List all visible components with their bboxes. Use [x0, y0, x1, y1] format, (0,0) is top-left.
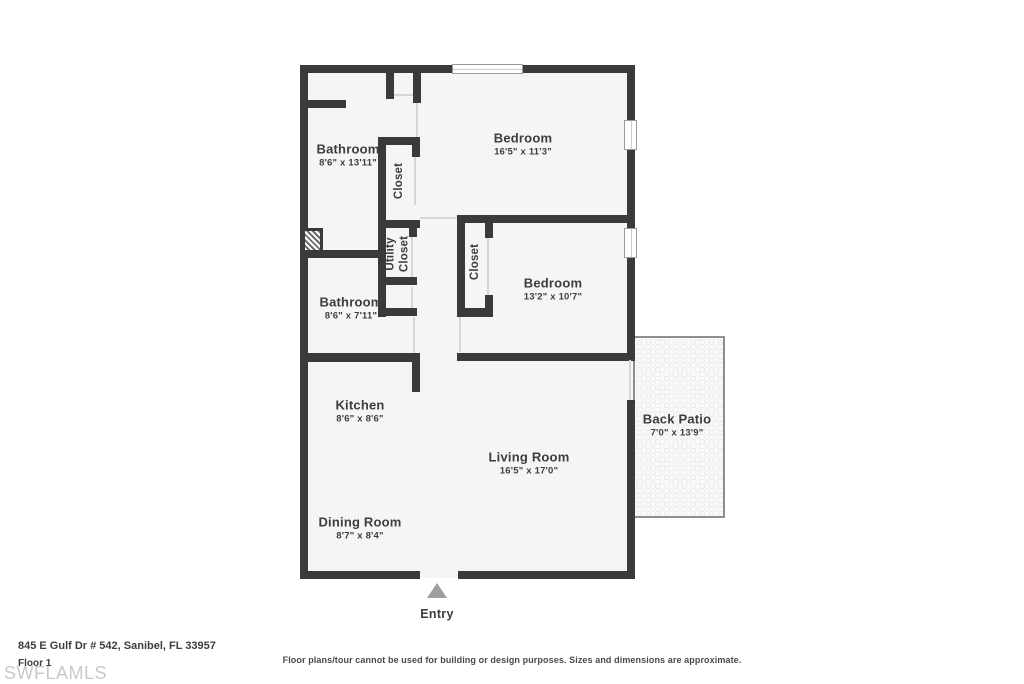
room-name: Dining Room: [318, 515, 401, 531]
door-opening: [411, 287, 413, 308]
room-dimensions: 7'0" x 13'9": [643, 428, 711, 440]
room-label-closet-2: Closet: [468, 244, 482, 280]
door-opening: [414, 157, 416, 205]
room-name: Back Patio: [643, 412, 711, 428]
room-name: Kitchen: [335, 398, 384, 414]
window: [452, 64, 523, 74]
door-opening: [459, 317, 461, 352]
wall-segment: [627, 65, 635, 120]
room-label-closet-1: Closet: [392, 163, 406, 199]
wall-segment: [457, 353, 635, 361]
disclaimer-text: Floor plans/tour cannot be used for buil…: [0, 655, 1024, 665]
room-name: Closet: [468, 244, 482, 280]
door-opening: [487, 238, 489, 295]
room-label-bathroom-2: Bathroom 8'6" x 7'11": [320, 295, 383, 324]
wall-segment: [409, 222, 417, 237]
entry-arrow-icon: [427, 583, 447, 598]
room-label-bedroom-2: Bedroom 13'2" x 10'7": [524, 276, 582, 305]
room-name: Bathroom: [317, 142, 380, 158]
room-dimensions: 16'5" x 11'3": [494, 147, 552, 159]
room-name: Closet: [392, 163, 406, 199]
wall-segment: [458, 571, 635, 579]
wall-segment: [300, 571, 420, 579]
door-opening: [394, 94, 413, 96]
wall-segment: [412, 353, 420, 392]
chimney-hatch: [302, 228, 323, 253]
room-name: Closet: [398, 236, 412, 272]
wall-segment: [457, 215, 635, 223]
room-dimensions: 8'6" x 7'11": [320, 311, 383, 323]
window-pane: [631, 121, 632, 149]
room-label-kitchen: Kitchen 8'6" x 8'6": [335, 398, 384, 427]
wall-segment: [523, 65, 635, 73]
window: [624, 120, 637, 150]
door-opening: [420, 217, 457, 219]
room-label-utility-closet: Utility Closet: [384, 236, 413, 272]
room-name: Utility: [384, 236, 398, 272]
wall-segment: [300, 100, 346, 108]
door-opening: [413, 317, 415, 353]
room-label-dining-room: Dining Room 8'7" x 8'4": [318, 515, 401, 544]
door-opening: [629, 360, 631, 400]
wall-segment: [457, 308, 493, 317]
room-label-back-patio: Back Patio 7'0" x 13'9": [643, 412, 711, 441]
room-dimensions: 8'6" x 8'6": [335, 414, 384, 426]
window: [624, 228, 637, 258]
room-label-bathroom-1: Bathroom 8'6" x 13'11": [317, 142, 380, 171]
room-name: Bathroom: [320, 295, 383, 311]
wall-segment: [300, 353, 420, 362]
room-name: Bedroom: [494, 131, 552, 147]
wall-segment: [485, 295, 493, 308]
window-pane: [631, 229, 632, 257]
property-address: 845 E Gulf Dr # 542, Sanibel, FL 33957: [18, 640, 216, 652]
wall-segment: [627, 258, 635, 360]
wall-segment: [300, 65, 452, 73]
wall-segment: [378, 277, 417, 285]
wall-segment: [627, 400, 635, 571]
room-name: Living Room: [489, 450, 570, 466]
room-label-bedroom-1: Bedroom 16'5" x 11'3": [494, 131, 552, 160]
wall-segment: [413, 73, 421, 103]
wall-segment: [386, 73, 394, 99]
wall-segment: [457, 215, 465, 317]
floor-plan-page: Bathroom 8'6" x 13'11" Closet Bedroom 16…: [0, 0, 1024, 682]
wall-segment: [300, 65, 308, 578]
room-dimensions: 8'6" x 13'11": [317, 158, 380, 170]
door-opening: [416, 103, 418, 137]
room-dimensions: 13'2" x 10'7": [524, 292, 582, 304]
room-dimensions: 8'7" x 8'4": [318, 531, 401, 543]
room-name: Bedroom: [524, 276, 582, 292]
room-dimensions: 16'5" x 17'0": [489, 466, 570, 478]
mls-watermark: SWFLAMLS: [4, 663, 107, 684]
entry-label: Entry: [420, 607, 453, 621]
wall-segment: [378, 308, 417, 316]
wall-segment: [412, 145, 420, 157]
window-pane: [453, 69, 522, 70]
wall-segment: [485, 223, 493, 238]
room-label-living-room: Living Room 16'5" x 17'0": [489, 450, 570, 479]
